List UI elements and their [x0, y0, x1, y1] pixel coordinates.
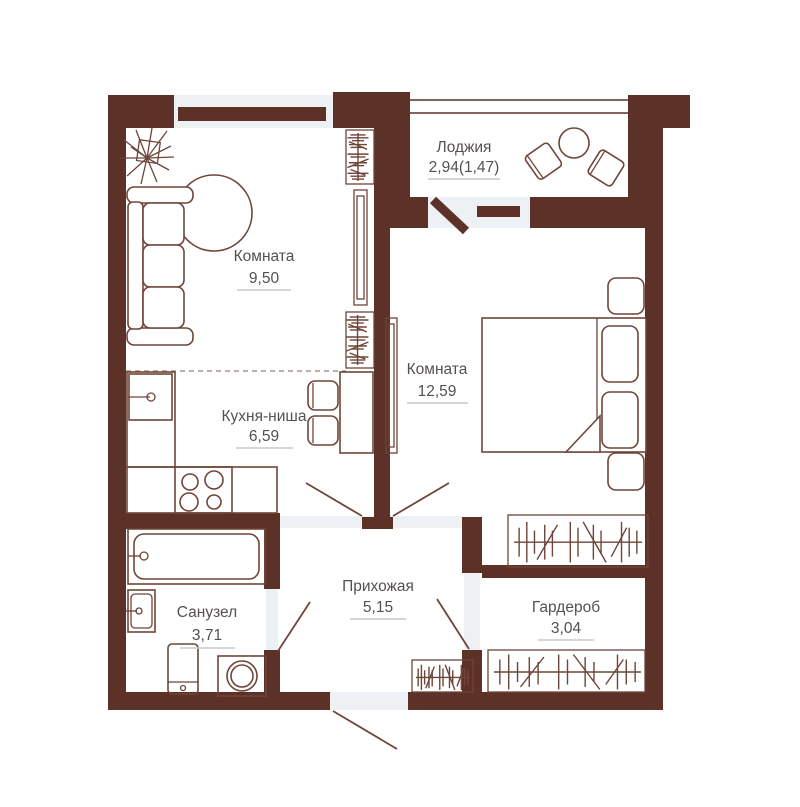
wall-bottom-right [408, 692, 663, 710]
label-bedroom: Комната 12,59 [407, 361, 468, 403]
pillow [602, 392, 638, 448]
floor-plan: Комната 9,50 Кухня-ниша 6,59 Комната 12,… [0, 0, 800, 807]
kitchen-table [340, 372, 373, 453]
room-name: Прихожая [342, 578, 414, 595]
bathroom-door-leaf [278, 602, 310, 651]
wall-stub-hall [362, 517, 393, 529]
wall-hall-wardrobe-upper [462, 517, 482, 573]
room-name: Кухня-ниша [222, 408, 307, 425]
wardrobe-closet [488, 650, 645, 692]
bathtub [128, 529, 265, 584]
label-kitchen: Кухня-ниша 6,59 [222, 408, 307, 448]
bathroom-sink [126, 590, 155, 632]
kitchen-door-leaf [306, 483, 362, 516]
bedroom-door-leaf [393, 483, 449, 516]
pillow [602, 326, 638, 382]
bedroom-closet [508, 515, 648, 567]
wall-left [108, 95, 126, 710]
bathroom-door-opening [266, 589, 278, 650]
room-name: Лоджия [437, 139, 492, 156]
washing-machine [218, 656, 266, 696]
wall-bottom-left [108, 692, 330, 710]
label-loggia: Лоджия 2,94(1,47) [428, 139, 500, 179]
label-hallway: Прихожая 5,15 [342, 578, 414, 619]
kitchen-counter-bottom [127, 467, 277, 513]
room-area: 6,59 [249, 428, 279, 445]
loggia-furniture [524, 128, 625, 187]
plant-icon [120, 128, 174, 184]
room-name: Комната [407, 361, 468, 378]
wall-loggia-bottom-right [530, 197, 645, 228]
room-area: 9,50 [249, 270, 280, 287]
room-area: 3,04 [551, 620, 582, 637]
wall-loggia-bottom-left [388, 197, 428, 228]
wall-right [645, 225, 663, 710]
window-sill-bar [178, 107, 326, 121]
corner-sofa [127, 187, 193, 345]
label-bathroom: Санузел 3,71 [177, 604, 237, 648]
room-area: 3,71 [192, 627, 222, 644]
nightstand [608, 453, 644, 490]
room-name: Комната [234, 248, 295, 265]
wall-top-left-block [108, 95, 174, 128]
room-area: 5,15 [363, 599, 393, 616]
loggia-chair-right [587, 149, 626, 188]
loggia-chair-left [524, 142, 563, 181]
kitchen-sink [128, 374, 172, 420]
label-wardrobe: Гардероб 3,04 [532, 599, 600, 640]
toilet [168, 644, 198, 694]
nightstand [608, 278, 644, 314]
room-area: 12,59 [418, 383, 457, 400]
label-living-room: Комната 9,50 [234, 248, 295, 290]
balcony-window-bar [477, 206, 520, 217]
entrance-door-opening [330, 692, 408, 710]
double-bed [482, 318, 646, 452]
loggia-table [559, 128, 589, 158]
wardrobe-door-opening [464, 573, 480, 650]
wall-top-center-block [333, 92, 410, 128]
room-area: 2,94(1,47) [429, 159, 500, 176]
wall-living-bedroom [374, 128, 390, 518]
stove [175, 467, 232, 513]
built-in-closet [346, 130, 374, 368]
entrance-door-leaf [333, 711, 397, 749]
wall-bath-hall-upper [264, 529, 280, 589]
room-name: Гардероб [532, 599, 600, 616]
room-name: Санузел [177, 604, 237, 621]
kitchen-chairs [308, 381, 338, 445]
wall-kitchen-bath [108, 513, 280, 529]
